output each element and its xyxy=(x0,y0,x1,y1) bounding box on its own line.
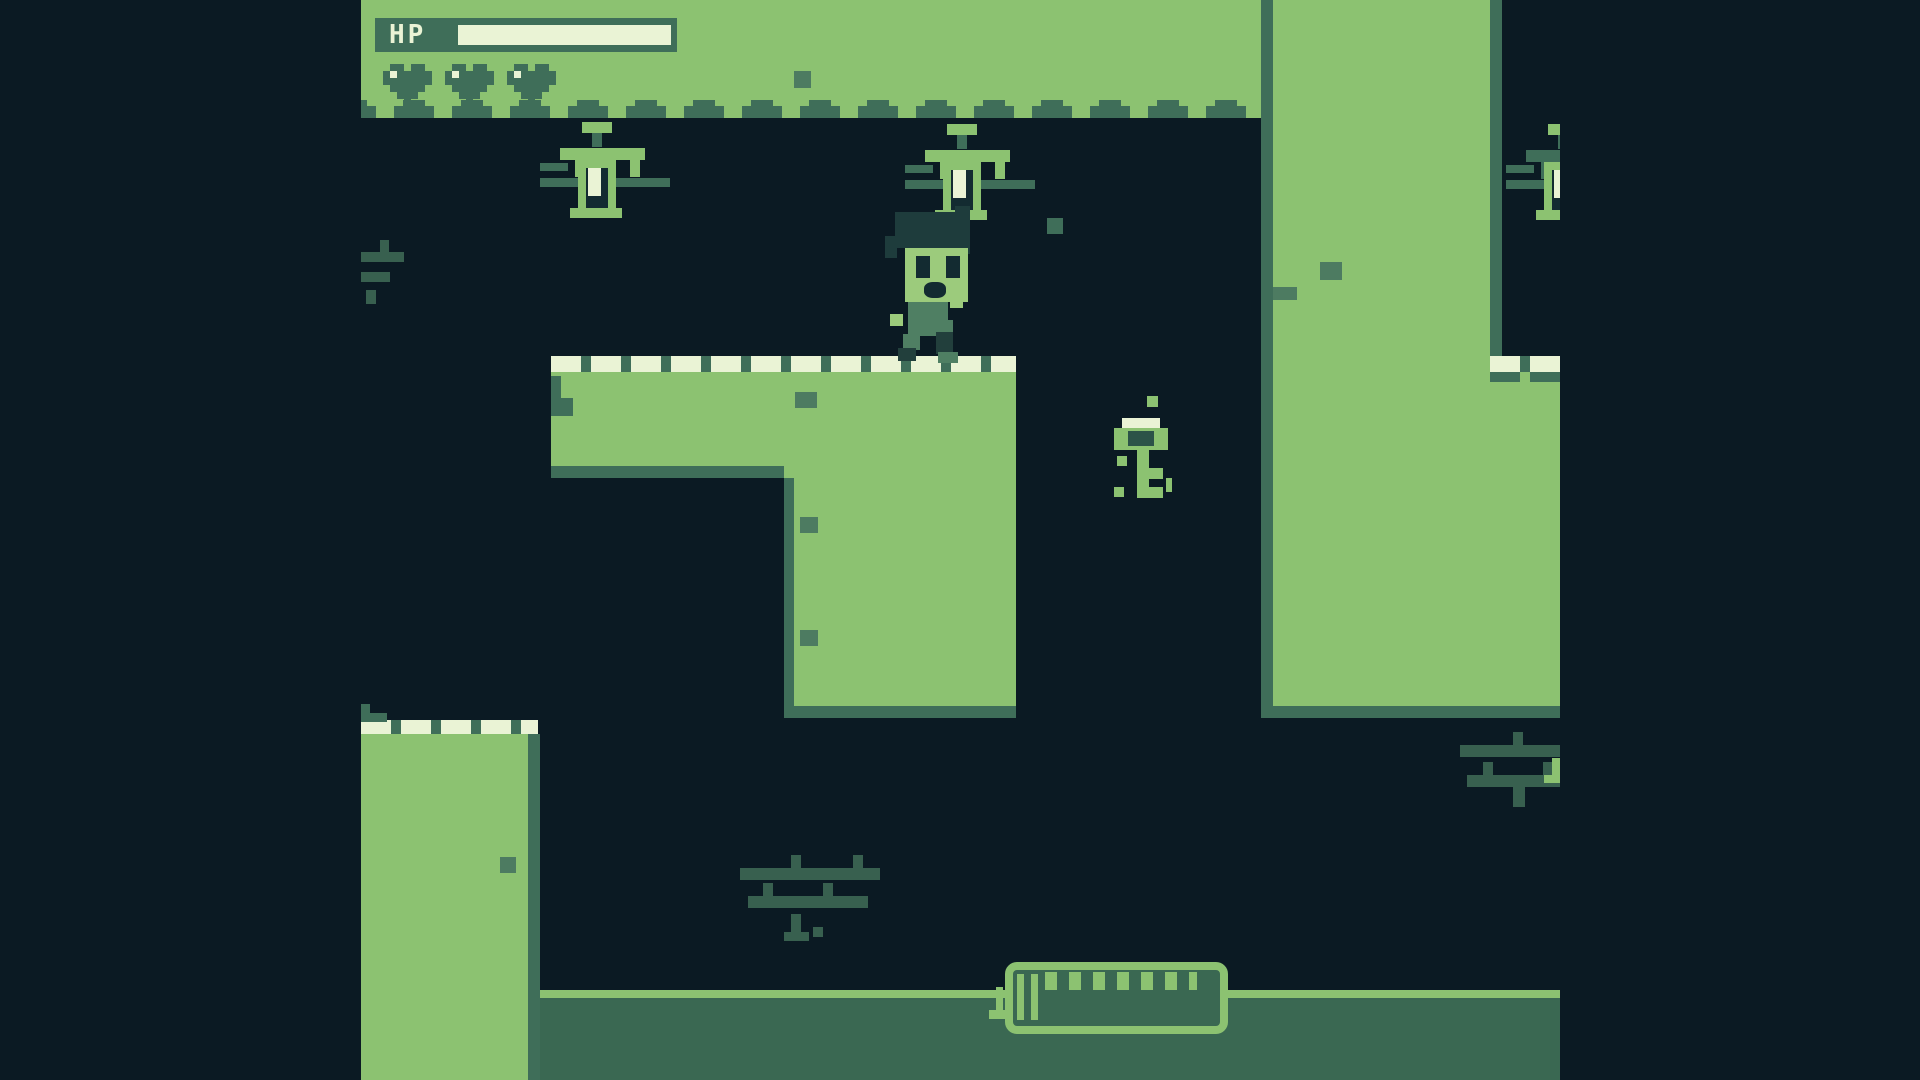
player-hand xyxy=(890,314,903,326)
lantern-crossbar xyxy=(925,150,1010,162)
bed-blanket-pattern xyxy=(1045,972,1197,990)
key-head-hole xyxy=(1128,431,1154,446)
key-stem xyxy=(1137,450,1149,492)
vine-segment xyxy=(366,290,376,304)
lantern-hook xyxy=(1558,135,1560,149)
game-viewport[interactable]: HP xyxy=(361,0,1560,1080)
bed-sprite xyxy=(1005,962,1228,1034)
right-terrain-left-shade xyxy=(1261,0,1273,706)
left-column-dashed-edge xyxy=(361,720,538,734)
lantern-crossbar xyxy=(560,148,645,160)
left-column-right-shade xyxy=(528,734,540,1080)
player-hair xyxy=(895,212,957,248)
vine-segment xyxy=(748,896,868,908)
hp-bar-fill xyxy=(458,25,671,45)
lantern-back-arm xyxy=(540,163,568,171)
terrain-detail-square xyxy=(500,857,516,873)
terrain-detail-square xyxy=(795,392,817,408)
lantern-post xyxy=(995,162,1005,179)
vine-segment xyxy=(740,868,880,880)
key-item xyxy=(1113,395,1175,503)
player-leg xyxy=(936,332,953,354)
platform-corner-step xyxy=(561,398,573,416)
lantern xyxy=(1506,102,1560,224)
player-eye xyxy=(916,256,930,278)
ceiling-bumps-row xyxy=(367,106,1261,118)
vine-segment xyxy=(1460,745,1560,757)
right-step-dash-shadow xyxy=(1490,372,1560,382)
player-mouth xyxy=(924,282,946,298)
right-terrain-upper xyxy=(1261,0,1490,360)
platform-corner-step xyxy=(551,376,561,416)
hp-bar: HP xyxy=(375,18,677,52)
key-sparkle xyxy=(1166,478,1172,492)
terrain-detail-square xyxy=(800,517,818,533)
middle-platform-underside-shade xyxy=(551,466,784,478)
torch-stub-base xyxy=(989,1010,1005,1019)
left-column-block xyxy=(361,734,528,1080)
lantern-top-bar xyxy=(947,124,977,135)
vine-segment xyxy=(380,240,389,252)
terrain-detail-square xyxy=(1320,262,1342,280)
lantern-candle xyxy=(1554,170,1560,198)
plant-sprout xyxy=(1544,775,1560,783)
right-terrain-right-shade xyxy=(1490,0,1502,360)
middle-platform-column xyxy=(784,478,1016,706)
player-eye xyxy=(946,256,960,278)
player-boot xyxy=(938,352,958,363)
game-screen: HP xyxy=(0,0,1920,1080)
heart-icon xyxy=(383,64,390,71)
terrain-detail-square xyxy=(1273,287,1297,300)
key-tooth xyxy=(1149,468,1163,479)
terrain-detail-square xyxy=(800,630,818,646)
lantern-candle xyxy=(953,170,966,198)
lantern-top-bar xyxy=(1548,124,1560,135)
lantern-top-bar xyxy=(582,122,612,133)
player-torso xyxy=(908,302,948,320)
heart-icon xyxy=(445,64,452,71)
lantern-crossbar xyxy=(1526,150,1560,162)
middle-platform-column-left-shade xyxy=(784,478,794,706)
vine-decoration xyxy=(1460,732,1560,812)
vine-segment xyxy=(784,932,809,941)
key-sparkle xyxy=(1117,456,1127,466)
middle-platform-top xyxy=(551,372,1016,478)
right-terrain-lower xyxy=(1261,360,1560,706)
key-tooth xyxy=(1137,487,1163,498)
player-boot xyxy=(898,348,916,361)
vine-decoration xyxy=(361,240,406,305)
lantern-post xyxy=(630,160,640,177)
player-shoulder xyxy=(950,294,963,308)
lantern xyxy=(540,100,670,222)
lantern-candle xyxy=(588,168,601,196)
key-sparkle xyxy=(1147,396,1158,407)
hp-label: HP xyxy=(375,20,426,50)
lantern-back-arm xyxy=(1506,165,1534,173)
player-character xyxy=(885,206,985,364)
ceiling-bumps-row xyxy=(367,96,1261,106)
vine-segment xyxy=(791,914,801,934)
bed-headboard-bar xyxy=(1017,974,1024,1020)
vine-segment xyxy=(361,272,390,282)
vine-segment xyxy=(813,927,823,937)
floating-particle xyxy=(1047,218,1063,234)
right-step-dashed-edge xyxy=(1490,356,1560,372)
player-hair-back xyxy=(955,206,970,254)
bed-headboard-bar xyxy=(1031,974,1038,1020)
vine-segment xyxy=(1513,787,1525,807)
heart-icon xyxy=(507,64,514,71)
right-terrain-bottom-shade xyxy=(1261,706,1560,718)
lantern-bottom-bar xyxy=(570,208,622,218)
vine-decoration xyxy=(740,853,881,943)
vine-segment xyxy=(361,252,404,262)
platform-corner-step xyxy=(361,713,387,722)
middle-platform-bottom-shade xyxy=(784,706,1016,718)
lantern-back-arm xyxy=(905,165,933,173)
lantern-hook xyxy=(592,133,602,147)
key-sparkle xyxy=(1114,487,1124,497)
player-hair-swoosh xyxy=(885,236,897,258)
lantern-bottom-bar xyxy=(1536,210,1560,220)
terrain-detail-square xyxy=(794,71,811,88)
lantern-hook xyxy=(957,135,967,149)
